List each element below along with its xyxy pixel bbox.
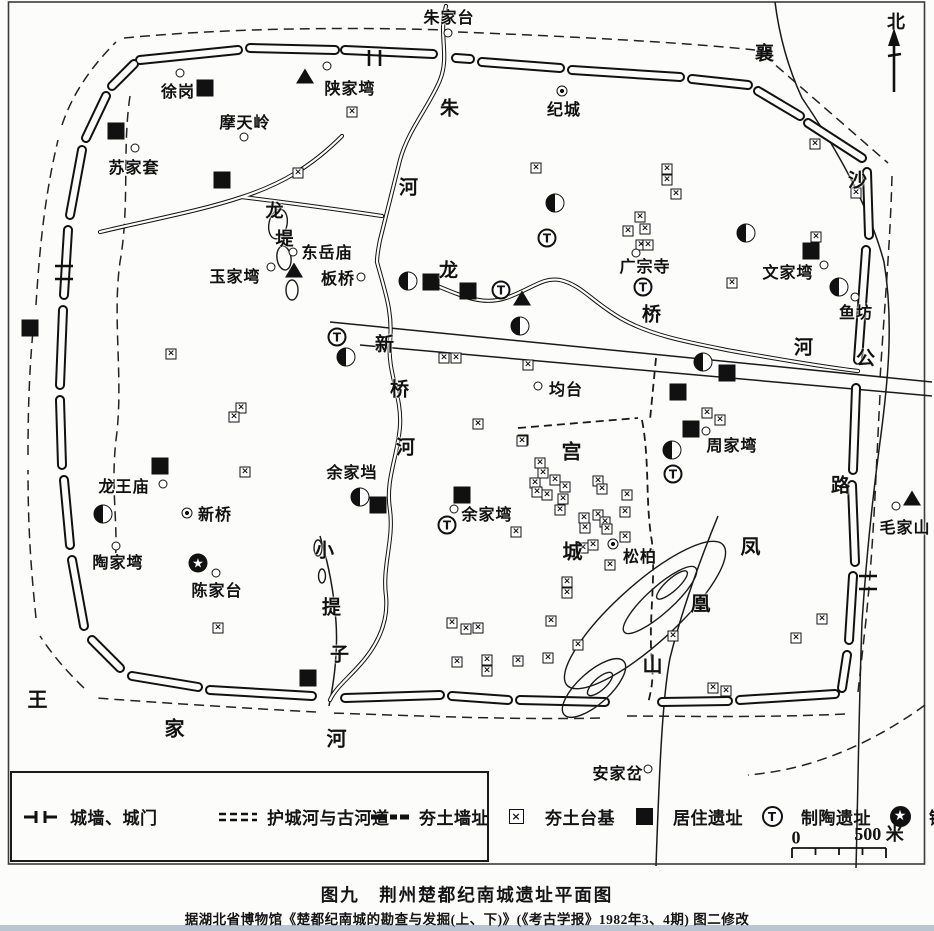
residence-site-marker — [683, 421, 700, 438]
map-label: 桥 — [390, 375, 410, 402]
place-circled-dot-marker — [182, 508, 193, 519]
map-label: 松柏 — [623, 543, 657, 567]
well-cluster-marker — [830, 278, 849, 297]
tomb-marker — [903, 491, 921, 506]
place-dot-marker — [267, 263, 276, 272]
rammed-wall-icon — [370, 813, 410, 821]
rammed-earth-platform-marker: × — [817, 614, 828, 625]
map-label: 东岳庙 — [301, 239, 352, 263]
well-cluster-marker — [94, 505, 113, 524]
map-label: 宫 — [562, 436, 583, 465]
map-label: 河 — [399, 173, 419, 200]
rammed-earth-platform-marker: × — [447, 618, 458, 629]
map-label: 苏家套 — [108, 154, 159, 178]
rammed-earth-platform-marker: × — [668, 631, 679, 642]
pottery-site-marker: T — [538, 229, 557, 248]
map-label: 摩天岭 — [219, 109, 270, 133]
well-cluster-marker — [663, 441, 682, 460]
rammed-earth-platform-marker: × — [635, 212, 646, 223]
residence-site-marker — [197, 80, 214, 97]
place-dot-marker — [159, 480, 168, 489]
map-label: 板桥 — [321, 265, 355, 289]
rammed-earth-platform-marker: × — [558, 494, 569, 505]
map-label: 河 — [327, 723, 348, 752]
map-label: 龙 — [266, 197, 285, 223]
rammed-earth-platform-marker: × — [643, 240, 654, 251]
figure-source: 据湖北省博物馆《楚都纪南城的勘查与发掘(上、下)》(《考古学报》1982年3、4… — [0, 908, 934, 928]
legend-item-residence: 居住遗址 — [615, 775, 743, 858]
tomb-marker — [285, 263, 303, 278]
rammed-earth-platform-marker: × — [482, 655, 493, 666]
rammed-earth-platform-marker: × — [588, 540, 599, 551]
wall-gate-icon — [21, 809, 61, 825]
rammed-earth-platform-marker: × — [452, 657, 463, 668]
rammed-earth-platform-marker: × — [531, 163, 542, 174]
place-dot-marker — [644, 765, 653, 774]
rammed-earth-platform-marker: × — [166, 349, 177, 360]
residence-site-marker — [108, 123, 125, 140]
rammed-earth-platform-marker: × — [620, 532, 631, 543]
legend-item-wall-gate: 城墙、城门 — [12, 775, 209, 858]
rammed-earth-platform-marker: × — [543, 653, 554, 664]
rammed-earth-platform-marker: × — [229, 412, 240, 423]
map-label: 玉家塆 — [209, 263, 260, 287]
rammed-earth-platform-marker: × — [555, 505, 566, 516]
rammed-earth-platform-marker: × — [622, 490, 633, 501]
well-cluster-marker — [737, 224, 756, 243]
map-label: 鱼坊 — [839, 299, 873, 323]
residence-site-marker — [370, 497, 387, 514]
map-label: 新 — [375, 330, 395, 357]
rammed-earth-platform-marker: × — [523, 360, 534, 371]
map-label: 周家塆 — [706, 432, 757, 456]
legend-item-platform: × 夯土台基 — [487, 775, 615, 858]
map-label: 公 — [856, 344, 876, 371]
legend-item-moat: 护城河与古河道 — [209, 775, 361, 858]
map-label: 山 — [643, 649, 664, 678]
figure-page: ××××××××××××××××××××××××××××××××××××××××… — [0, 0, 934, 931]
rammed-earth-platform-marker: × — [671, 189, 682, 200]
place-dot-marker — [323, 62, 332, 71]
rammed-earth-platform-marker: × — [439, 353, 450, 364]
pottery-site-icon: T — [762, 806, 783, 827]
rammed-earth-platform-marker: × — [240, 467, 251, 478]
pottery-site-marker: T — [492, 281, 511, 300]
map-label: 沙 — [848, 166, 868, 193]
map-label: 河 — [794, 333, 814, 360]
residence-site-marker — [460, 283, 477, 300]
map-label: 朱家台 — [423, 4, 474, 28]
rammed-earth-platform-marker: × — [451, 353, 462, 364]
legend-item-pottery: T 制陶遗址 — [743, 775, 871, 858]
legend-label: 制陶遗址 — [801, 804, 871, 829]
rammed-earth-platform-marker: × — [708, 683, 719, 694]
place-dot-marker — [892, 502, 901, 511]
rammed-earth-platform-marker: × — [511, 527, 522, 538]
tomb-marker — [513, 291, 531, 306]
legend-item-bronze: ★ 铸铜遗址 — [871, 775, 934, 858]
map-label: 朱 — [440, 94, 460, 121]
place-dot-marker — [240, 133, 249, 142]
rammed-earth-platform-marker: × — [562, 588, 573, 599]
marker-layer: ××××××××××××××××××××××××××××××××××××××××… — [0, 0, 934, 872]
moat-icon — [218, 811, 258, 823]
map-label: 陈家台 — [191, 577, 242, 601]
legend-label: 居住遗址 — [673, 804, 743, 829]
well-cluster-marker — [337, 348, 356, 367]
rammed-earth-platform-marker: × — [473, 623, 484, 634]
place-dot-marker — [450, 505, 459, 514]
place-dot-marker — [820, 261, 829, 270]
figure-caption: 图九 荆州楚都纪南城遗址平面图 — [0, 882, 934, 907]
map-legend: 城墙、城门 护城河与古河道 夯土墙址 × 夯土台基 居住遗址 T 制陶遗址 ★ — [10, 771, 489, 862]
map-label: 龙 — [439, 256, 459, 283]
map-label: 龙王庙 — [98, 473, 149, 497]
well-cluster-marker — [351, 488, 370, 507]
place-dot-marker — [444, 29, 453, 38]
north-label: 北 — [887, 8, 905, 34]
residence-site-marker — [803, 243, 820, 260]
legend-label: 夯土墙址 — [419, 804, 489, 829]
rammed-earth-platform-marker: × — [580, 523, 591, 534]
rammed-earth-platform-marker: × — [727, 278, 738, 289]
map-label: 徐岗 — [161, 78, 195, 102]
map-label: 凰 — [691, 588, 712, 617]
place-dot-marker — [357, 273, 366, 282]
well-cluster-marker — [694, 353, 713, 372]
map-label: 小 — [315, 536, 335, 563]
map-label: 毛家山 — [879, 514, 930, 538]
residence-site-marker — [719, 365, 736, 382]
map-label: 子 — [330, 640, 350, 667]
pottery-site-marker: T — [634, 278, 653, 297]
map-label: 王 — [28, 684, 49, 713]
rammed-earth-platform-marker: × — [640, 224, 651, 235]
rammed-earth-platform-marker: × — [461, 624, 472, 635]
map-label: 新桥 — [198, 501, 232, 525]
rammed-earth-platform-marker: × — [811, 232, 822, 243]
rammed-earth-platform-marker: × — [721, 686, 732, 697]
rammed-earth-platform-marker: × — [513, 656, 524, 667]
map-label: 余家垱 — [326, 459, 377, 483]
rammed-earth-platform-marker: × — [602, 524, 613, 535]
map-label: 路 — [831, 471, 851, 498]
rammed-earth-platform-marker: × — [347, 107, 358, 118]
rammed-earth-platform-marker: × — [662, 175, 673, 186]
map-label: 纪城 — [547, 96, 581, 120]
residence-site-marker — [214, 172, 231, 189]
bronze-casting-site-icon: ★ — [890, 806, 911, 827]
rammed-earth-platform-marker: × — [293, 168, 304, 179]
map-label: 均台 — [549, 376, 583, 400]
rammed-earth-platform-marker: × — [542, 490, 553, 501]
map-label: 陕家塆 — [324, 75, 375, 99]
rammed-earth-platform-marker: × — [546, 616, 557, 627]
map-label: 堤 — [276, 225, 295, 251]
bronze-casting-site-marker: ★ — [189, 554, 208, 573]
map-label: 提 — [322, 593, 342, 620]
tomb-marker — [296, 69, 314, 84]
legend-label: 铸铜遗址 — [929, 804, 934, 829]
legend-item-rammed-wall: 夯土墙址 — [361, 775, 487, 858]
residence-site-marker — [670, 384, 687, 401]
legend-label: 城墙、城门 — [70, 804, 158, 829]
map-label: 襄 — [755, 39, 775, 66]
rammed-earth-platform-icon: × — [509, 809, 524, 824]
rammed-earth-platform-marker: × — [482, 666, 493, 677]
pottery-site-marker: T — [438, 516, 457, 535]
rammed-earth-platform-marker: × — [473, 419, 484, 430]
rammed-earth-platform-marker: × — [560, 482, 571, 493]
map-label: 河 — [396, 433, 416, 460]
rammed-earth-platform-marker: × — [702, 408, 713, 419]
place-circled-dot-marker — [557, 86, 568, 97]
rammed-earth-platform-marker: × — [213, 623, 224, 634]
well-cluster-marker — [399, 272, 418, 291]
map-label: 陶家塆 — [92, 549, 143, 573]
place-dot-marker — [176, 69, 185, 78]
map-label: 广宗寺 — [619, 253, 670, 277]
place-dot-marker — [131, 144, 140, 153]
map-label: 文家塆 — [762, 259, 813, 283]
rammed-earth-platform-marker: × — [573, 640, 584, 651]
rammed-earth-platform-marker: × — [562, 577, 573, 588]
rammed-earth-platform-marker: × — [517, 436, 528, 447]
well-cluster-marker — [546, 194, 565, 213]
map-label: 桥 — [642, 300, 662, 327]
map-label: 家 — [165, 713, 186, 742]
residence-site-marker — [423, 274, 440, 291]
place-circled-dot-marker — [608, 539, 619, 550]
rammed-earth-platform-marker: × — [620, 507, 631, 518]
pottery-site-marker: T — [664, 465, 683, 484]
rammed-earth-platform-marker: × — [810, 139, 821, 150]
map-label: 凤 — [741, 531, 762, 560]
map-label: 城 — [563, 536, 584, 565]
map-label: 余家塆 — [461, 501, 512, 525]
residence-site-icon — [636, 808, 653, 825]
place-dot-marker — [534, 382, 543, 391]
rammed-earth-platform-marker: × — [605, 560, 616, 571]
rammed-earth-platform-marker: × — [791, 633, 802, 644]
rammed-earth-platform-marker: × — [597, 484, 608, 495]
residence-site-marker — [22, 320, 39, 337]
rammed-earth-platform-marker: × — [715, 415, 726, 426]
residence-site-marker — [300, 670, 317, 687]
well-cluster-marker — [511, 317, 530, 336]
rammed-earth-platform-marker: × — [623, 226, 634, 237]
pottery-site-marker: T — [328, 328, 347, 347]
legend-label: 夯土台基 — [545, 804, 615, 829]
rammed-earth-platform-marker: × — [662, 164, 673, 175]
residence-site-marker — [152, 458, 169, 475]
